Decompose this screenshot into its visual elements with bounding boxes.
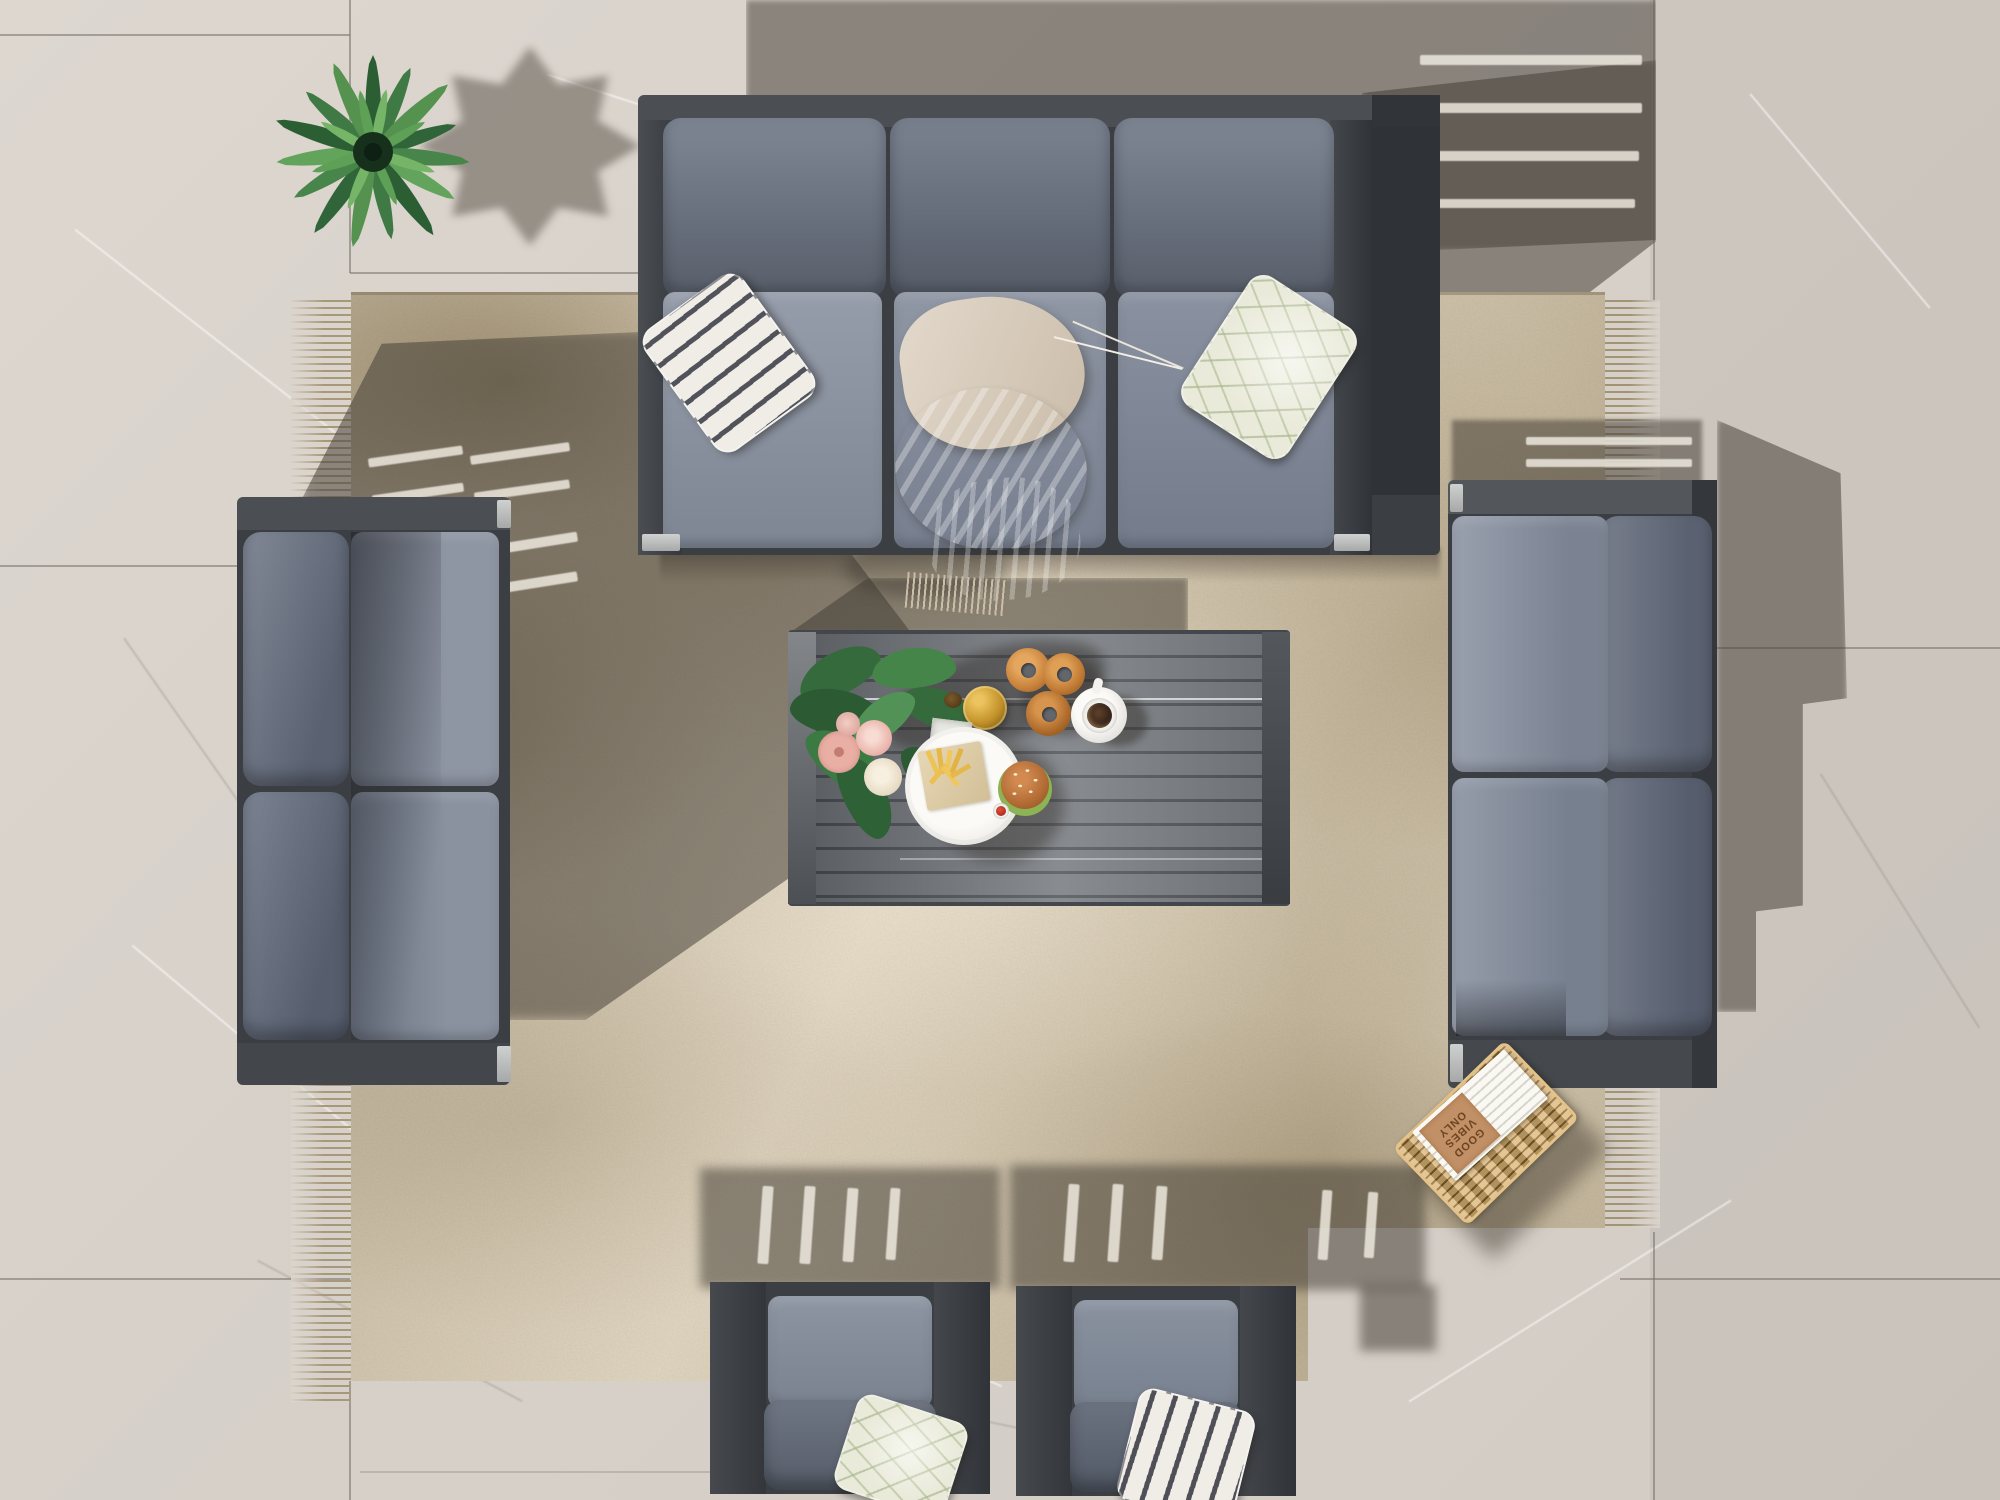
seat-shadow-swath xyxy=(351,532,441,1040)
grout-line xyxy=(1653,1232,1655,1500)
flower-pink xyxy=(856,720,892,756)
frame-silver-cap xyxy=(497,500,511,528)
seat-cushion xyxy=(1452,516,1608,772)
slat-light xyxy=(1420,103,1642,113)
chair-seat-cushion xyxy=(768,1296,932,1408)
flower-pink-small xyxy=(836,712,860,736)
frame-silver-cap xyxy=(1334,534,1370,551)
patio-scene: GOOD VIBES ONLY xyxy=(0,0,2000,1500)
sofa-top-right-dark xyxy=(1372,95,1440,495)
chair-right-shadow-ext xyxy=(1360,1285,1436,1351)
slat-light xyxy=(1526,459,1692,467)
book-cover-text: GOOD VIBES ONLY xyxy=(1433,1106,1487,1160)
slat-light xyxy=(1526,437,1692,445)
coffee xyxy=(1087,703,1112,728)
coffee-table-end-right xyxy=(1262,632,1290,904)
frame-silver-cap xyxy=(1450,1044,1463,1082)
donut xyxy=(1043,653,1085,695)
slat-light xyxy=(1420,55,1642,65)
back-cushion xyxy=(1114,118,1334,298)
ketchup xyxy=(996,806,1006,816)
donut xyxy=(1026,691,1071,736)
flower-cream xyxy=(864,758,902,796)
seat-front-shadow xyxy=(1456,980,1566,1036)
back-cushion xyxy=(243,792,349,1040)
back-cushion xyxy=(1600,516,1712,772)
frame-silver-cap xyxy=(642,534,680,551)
chair-arm xyxy=(1240,1286,1296,1496)
frame-silver-cap xyxy=(497,1046,511,1082)
chair-arm xyxy=(1016,1286,1072,1496)
slat-light xyxy=(1430,199,1635,208)
table-glint xyxy=(900,858,1262,860)
grout-line xyxy=(0,34,350,36)
berry-cluster xyxy=(944,692,962,708)
frame-silver-cap xyxy=(1450,484,1463,512)
slat-light xyxy=(1424,151,1639,161)
back-cushion xyxy=(663,118,886,298)
back-cushion xyxy=(890,118,1110,298)
back-cushion xyxy=(1600,778,1712,1036)
back-cushion xyxy=(243,532,349,786)
grout-line xyxy=(1620,1278,2000,1280)
flower-center xyxy=(834,747,844,757)
potted-palm xyxy=(262,40,484,264)
burger-seeds xyxy=(1001,761,1049,809)
chair-arm xyxy=(710,1282,766,1494)
